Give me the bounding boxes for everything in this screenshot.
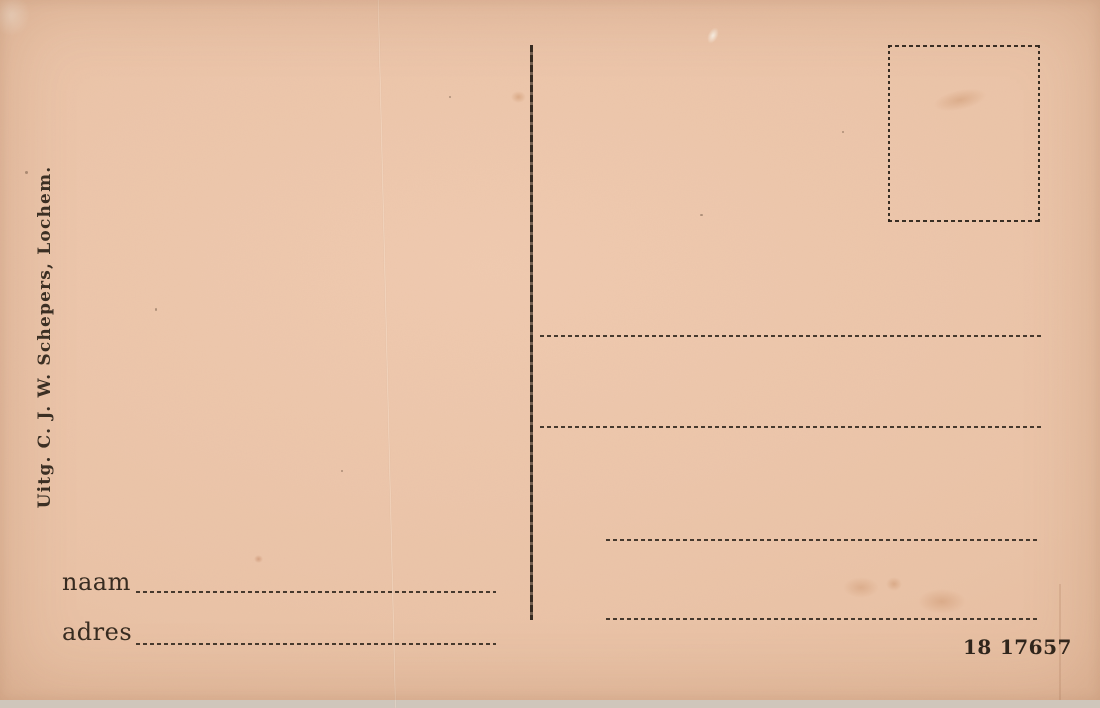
stamp-box-border-top xyxy=(888,45,1040,47)
serial-digits: 17657 xyxy=(1000,635,1072,659)
stamp-box-border-bottom xyxy=(888,220,1040,222)
stain xyxy=(254,555,263,563)
address-label: adres xyxy=(62,618,132,646)
center-divider-line xyxy=(530,45,533,620)
speck xyxy=(842,131,844,133)
name-dotted-line xyxy=(136,591,496,593)
speck xyxy=(700,214,703,216)
name-label: naam xyxy=(62,568,131,596)
white-fleck xyxy=(705,26,721,46)
address-dotted-line-1 xyxy=(540,335,1043,337)
paper-crease xyxy=(377,0,396,708)
serial-prefix: 18 xyxy=(963,635,992,659)
stain xyxy=(918,589,966,614)
address-dotted-line xyxy=(136,643,496,645)
address-dotted-line-3 xyxy=(606,539,1038,541)
address-dotted-line-4 xyxy=(606,618,1038,620)
address-dotted-line-2 xyxy=(540,426,1043,428)
speck xyxy=(25,171,28,174)
stain xyxy=(843,577,879,598)
stamp-box-border-left xyxy=(888,45,890,222)
stamp-box xyxy=(888,45,1040,222)
speck xyxy=(449,96,451,98)
stamp-box-border-right xyxy=(1038,45,1040,222)
postcard-back: Uitg. C. J. W. Schepers, Lochem. naam ad… xyxy=(0,0,1100,700)
corner-wear xyxy=(0,0,30,36)
serial-number: 1817657 xyxy=(963,635,1072,659)
publisher-imprint: Uitg. C. J. W. Schepers, Lochem. xyxy=(35,166,55,509)
stain xyxy=(886,577,902,591)
speck xyxy=(341,470,343,472)
speck xyxy=(155,308,157,311)
stain xyxy=(511,91,526,103)
